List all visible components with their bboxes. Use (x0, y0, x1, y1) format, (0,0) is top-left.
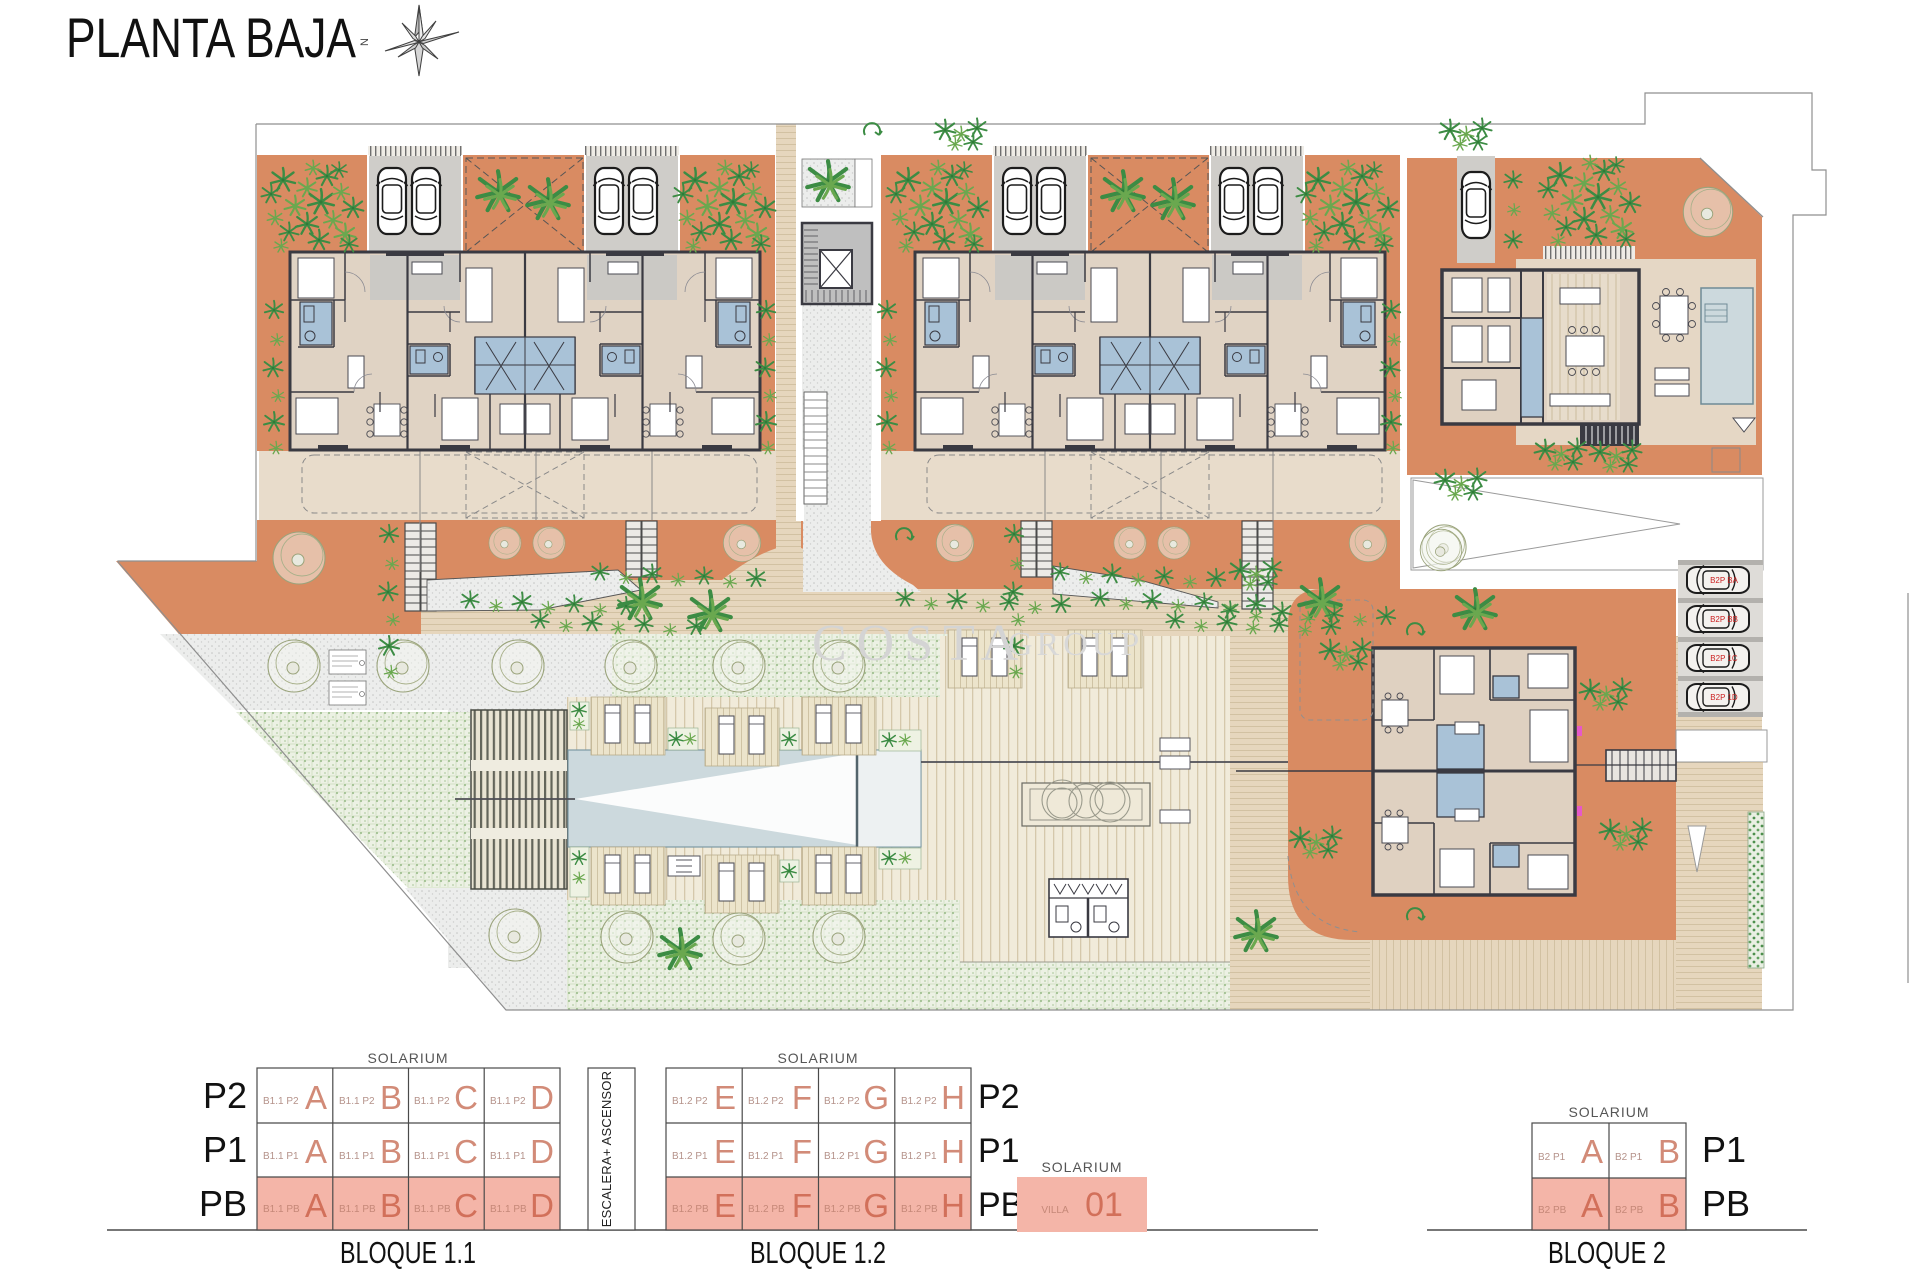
svg-text:B: B (380, 1187, 402, 1224)
svg-text:B1.2 PB: B1.2 PB (748, 1204, 785, 1215)
svg-text:E: E (714, 1187, 736, 1224)
svg-text:B2 PB: B2 PB (1538, 1205, 1567, 1216)
svg-text:B1.2 PB: B1.2 PB (824, 1204, 861, 1215)
svg-text:SOLARIUM: SOLARIUM (1041, 1159, 1122, 1175)
svg-text:P2: P2 (978, 1078, 1020, 1116)
svg-text:B1.1 P2: B1.1 P2 (414, 1096, 450, 1107)
svg-text:B1.2 P2: B1.2 P2 (824, 1096, 860, 1107)
svg-text:B1.1 P1: B1.1 P1 (339, 1151, 375, 1162)
svg-text:H: H (941, 1079, 965, 1116)
svg-text:A: A (305, 1079, 327, 1116)
svg-text:B1.1 P1: B1.1 P1 (414, 1151, 450, 1162)
svg-text:B1.1 P2: B1.1 P2 (263, 1096, 299, 1107)
svg-text:B1.1 P2: B1.1 P2 (339, 1096, 375, 1107)
svg-text:SOLARIUM: SOLARIUM (777, 1050, 858, 1066)
svg-text:A: A (1581, 1133, 1603, 1170)
svg-text:G: G (863, 1187, 889, 1224)
svg-text:G: G (863, 1133, 889, 1170)
svg-text:SOLARIUM: SOLARIUM (367, 1050, 448, 1066)
svg-text:C: C (454, 1187, 478, 1224)
svg-text:B1.1 P1: B1.1 P1 (490, 1151, 526, 1162)
svg-text:B: B (1658, 1187, 1680, 1224)
svg-text:D: D (530, 1187, 554, 1224)
svg-text:B2 PB: B2 PB (1615, 1205, 1644, 1216)
svg-text:B1.1 PB: B1.1 PB (339, 1204, 376, 1215)
svg-text:B2 P1: B2 P1 (1538, 1152, 1566, 1163)
svg-text:N: N (359, 38, 371, 46)
svg-text:PB: PB (1702, 1183, 1750, 1224)
svg-text:B1.2 P1: B1.2 P1 (672, 1151, 708, 1162)
svg-text:VILLA: VILLA (1041, 1205, 1069, 1216)
svg-text:B1.1 PB: B1.1 PB (490, 1204, 527, 1215)
svg-text:B2 P1: B2 P1 (1615, 1152, 1643, 1163)
svg-text:F: F (792, 1079, 812, 1116)
svg-text:C: C (454, 1079, 478, 1116)
svg-text:PLANTA BAJA: PLANTA BAJA (66, 6, 357, 69)
svg-text:A: A (305, 1187, 327, 1224)
svg-text:BLOQUE 1.1: BLOQUE 1.1 (340, 1235, 476, 1270)
svg-text:B1.2 P1: B1.2 P1 (748, 1151, 784, 1162)
svg-text:B1.1 P1: B1.1 P1 (263, 1151, 299, 1162)
svg-text:A: A (1581, 1187, 1603, 1224)
svg-text:PB: PB (978, 1186, 1023, 1224)
svg-text:F: F (792, 1187, 812, 1224)
svg-text:H: H (941, 1133, 965, 1170)
svg-text:B1.2 P2: B1.2 P2 (748, 1096, 784, 1107)
svg-text:B1.2 P2: B1.2 P2 (901, 1096, 937, 1107)
svg-text:BLOQUE 1.2: BLOQUE 1.2 (750, 1235, 886, 1270)
svg-text:B: B (1658, 1133, 1680, 1170)
svg-text:P1: P1 (978, 1132, 1020, 1170)
svg-text:GROUP: GROUP (1008, 626, 1143, 663)
svg-text:B1.1 PB: B1.1 PB (263, 1204, 300, 1215)
svg-text:B1.2 PB: B1.2 PB (672, 1204, 709, 1215)
svg-text:E: E (714, 1079, 736, 1116)
svg-text:ESCALERA+ ASCENSOR: ESCALERA+ ASCENSOR (599, 1071, 614, 1227)
svg-text:SOLARIUM: SOLARIUM (1568, 1104, 1649, 1120)
svg-text:D: D (530, 1079, 554, 1116)
svg-text:01: 01 (1085, 1186, 1123, 1224)
svg-text:P2: P2 (203, 1075, 247, 1116)
svg-text:B1.2 P2: B1.2 P2 (672, 1096, 708, 1107)
svg-text:H: H (941, 1187, 965, 1224)
svg-text:PB: PB (199, 1183, 247, 1224)
svg-text:D: D (530, 1133, 554, 1170)
svg-text:F: F (792, 1133, 812, 1170)
svg-text:B1.2 P1: B1.2 P1 (824, 1151, 860, 1162)
svg-text:A: A (305, 1133, 327, 1170)
svg-text:B: B (380, 1079, 402, 1116)
svg-text:B1.2 PB: B1.2 PB (901, 1204, 938, 1215)
svg-text:B1.2 P1: B1.2 P1 (901, 1151, 937, 1162)
svg-text:B1.1 PB: B1.1 PB (414, 1204, 451, 1215)
svg-text:C: C (454, 1133, 478, 1170)
svg-text:COSTA: COSTA (812, 615, 1028, 672)
svg-text:P1: P1 (1702, 1129, 1746, 1170)
svg-text:B2P BA: B2P BA (1710, 576, 1739, 585)
svg-text:B1.1 P2: B1.1 P2 (490, 1096, 526, 1107)
svg-text:B2P BB: B2P BB (1710, 615, 1738, 624)
svg-text:P1: P1 (203, 1129, 247, 1170)
svg-text:B2P 1C: B2P 1C (1710, 654, 1738, 663)
svg-text:B: B (380, 1133, 402, 1170)
svg-text:G: G (863, 1079, 889, 1116)
svg-text:BLOQUE 2: BLOQUE 2 (1548, 1235, 1666, 1270)
svg-text:B2P 1D: B2P 1D (1710, 693, 1738, 702)
svg-text:E: E (714, 1133, 736, 1170)
